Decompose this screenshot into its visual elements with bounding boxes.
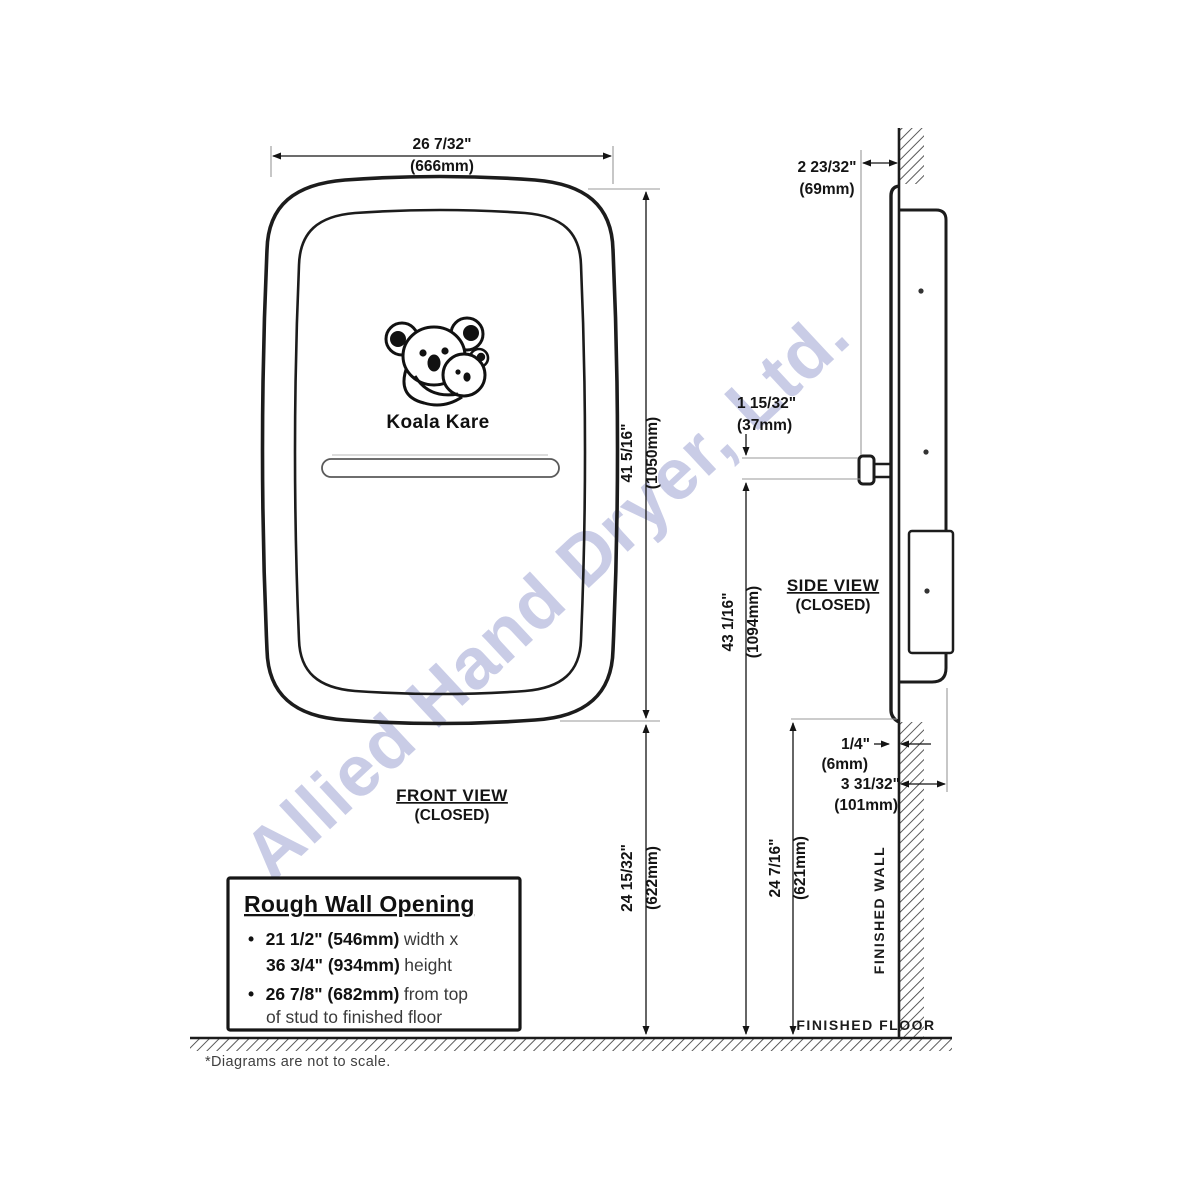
liner-slot	[322, 459, 559, 477]
latch-knob	[859, 456, 891, 484]
mounting-screw-icon	[923, 449, 928, 454]
dim-side-knob-in: 1 15/32"	[737, 395, 796, 412]
side-view-subtitle: (CLOSED)	[796, 597, 871, 614]
rough-wall-opening-line1: • 21 1/2" (546mm) width x	[248, 929, 459, 949]
rough-wall-opening-box: Rough Wall Opening • 21 1/2" (546mm) wid…	[228, 878, 520, 1030]
wall-hatch-lower	[899, 722, 924, 1038]
dim-front-width-mm: (666mm)	[410, 158, 474, 175]
koala-kare-logo: Koala Kare	[386, 318, 490, 433]
dim-side-lip-mm: (6mm)	[821, 756, 868, 773]
dim-side-lip-in: 1/4"	[841, 736, 870, 753]
dim-side-protrusion-in: 2 23/32"	[797, 159, 856, 176]
koala-kare-logo-text: Koala Kare	[386, 412, 489, 433]
dim-side-bottom-to-floor-mm: (621mm)	[792, 836, 809, 900]
finished-wall-label: FINISHED WALL	[871, 846, 887, 974]
side-view: 2 23/32" (69mm) 1 15/32" (37mm) 43 1/16"…	[720, 128, 953, 1038]
dim-side-knob-to-floor: 43 1/16" (1094mm)	[720, 483, 762, 1034]
footnote: *Diagrams are not to scale.	[205, 1054, 391, 1070]
dim-front-width-in: 26 7/32"	[412, 136, 471, 153]
dim-front-height: 41 5/16" (1050mm)	[560, 189, 661, 721]
mounting-screw-icon	[924, 588, 929, 593]
front-view-title: FRONT VIEW	[396, 786, 508, 805]
dim-side-recess-mm: (101mm)	[834, 797, 898, 814]
front-view-subtitle: (CLOSED)	[415, 807, 490, 824]
dim-side-bottom-to-floor-in: 24 7/16"	[767, 838, 784, 897]
mounting-screw-icon	[918, 288, 923, 293]
finished-floor-label: FINISHED FLOOR	[796, 1017, 935, 1033]
wall-hatch-upper	[899, 128, 924, 184]
dim-front-to-floor: 24 15/32" (622mm)	[619, 725, 661, 1034]
dim-front-height-mm: (1050mm)	[644, 417, 661, 489]
side-view-title: SIDE VIEW	[787, 576, 880, 595]
rough-wall-opening-line4: of stud to finished floor	[266, 1007, 442, 1027]
dim-side-knob-to-floor-mm: (1094mm)	[745, 586, 762, 658]
dim-side-protrusion-mm: (69mm)	[799, 181, 854, 198]
finished-floor	[190, 1038, 952, 1051]
watermark-text: Allied Hand Dryer, Ltd.	[229, 294, 865, 895]
diagram-canvas: Allied Hand Dryer, Ltd. Koala Kare	[0, 0, 1200, 1200]
rough-wall-opening-title: Rough Wall Opening	[244, 891, 475, 917]
dim-side-recess-in: 3 31/32"	[841, 776, 900, 793]
dim-side-knob-to-floor-in: 43 1/16"	[720, 592, 737, 651]
dim-front-to-floor-mm: (622mm)	[644, 846, 661, 910]
dim-front-to-floor-in: 24 15/32"	[619, 844, 636, 912]
side-unit-door	[909, 531, 953, 653]
dim-side-knob-mm: (37mm)	[737, 417, 792, 434]
floor-hatch	[190, 1038, 952, 1051]
dim-front-height-in: 41 5/16"	[619, 423, 636, 482]
rough-wall-opening-line3: • 26 7/8" (682mm) from top	[248, 984, 468, 1004]
rough-wall-opening-line2: 36 3/4" (934mm) height	[266, 955, 452, 975]
